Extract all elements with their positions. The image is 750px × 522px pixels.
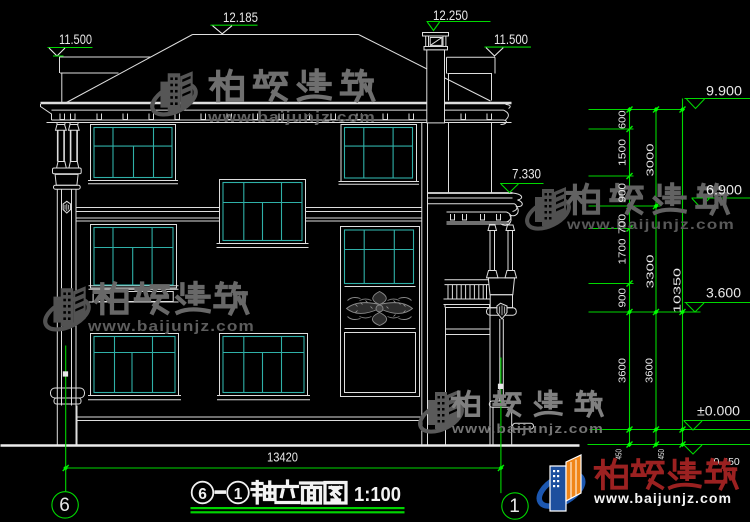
svg-text:12.185: 12.185: [223, 9, 258, 25]
svg-text:www.baijunjz.com: www.baijunjz.com: [207, 109, 376, 126]
svg-text:3600: 3600: [618, 358, 629, 383]
svg-text:1: 1: [234, 486, 243, 503]
svg-text:600: 600: [618, 110, 629, 129]
svg-text:±0.000: ±0.000: [697, 404, 740, 419]
svg-text:10350: 10350: [673, 267, 684, 313]
svg-text:www.baijunjz.com: www.baijunjz.com: [451, 421, 604, 436]
svg-text:www.baijunjz.com: www.baijunjz.com: [593, 491, 732, 506]
svg-text:11.500: 11.500: [494, 31, 528, 47]
svg-text:700: 700: [618, 213, 629, 234]
svg-text:13420: 13420: [267, 451, 298, 465]
svg-text:www.baijunjz.com: www.baijunjz.com: [566, 216, 735, 232]
svg-text:6: 6: [198, 486, 207, 503]
svg-text:900: 900: [618, 287, 629, 307]
svg-text:3300: 3300: [646, 254, 657, 289]
svg-text:6: 6: [59, 495, 70, 516]
svg-text:9.900: 9.900: [706, 83, 742, 99]
svg-text:3600: 3600: [645, 358, 656, 383]
svg-text:www.baijunjz.com: www.baijunjz.com: [87, 319, 255, 335]
svg-text:6.900: 6.900: [706, 182, 742, 198]
svg-text:7.330: 7.330: [512, 166, 541, 182]
svg-text:450: 450: [656, 449, 666, 460]
svg-text:1: 1: [509, 496, 520, 517]
svg-text:1700: 1700: [618, 238, 629, 265]
svg-text:900: 900: [618, 182, 629, 202]
svg-text:1500: 1500: [618, 138, 629, 166]
svg-text:11.500: 11.500: [59, 31, 92, 47]
svg-text:12.250: 12.250: [433, 7, 468, 23]
svg-text:3.600: 3.600: [706, 285, 741, 301]
svg-text:3000: 3000: [646, 143, 657, 177]
svg-text:1:100: 1:100: [354, 484, 401, 506]
svg-text:450: 450: [614, 449, 624, 460]
